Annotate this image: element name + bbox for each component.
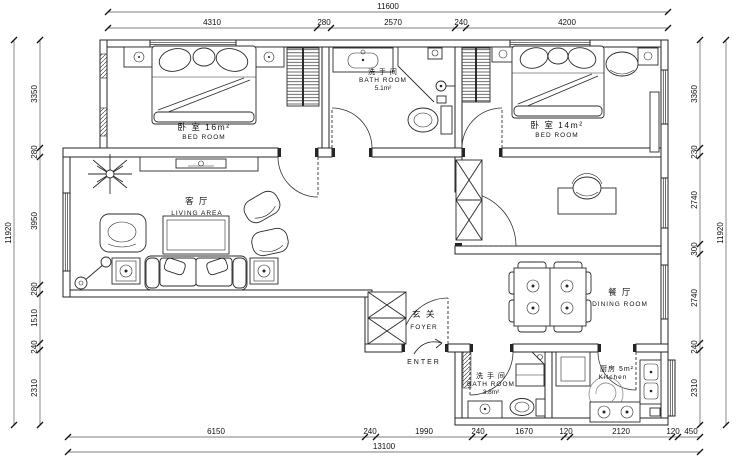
dim-bottom-3: 1990 <box>415 427 433 436</box>
room-label-dining-cn: 餐 厅 <box>608 287 632 297</box>
cabinet-x-icon <box>456 160 482 240</box>
cabinet-icon <box>516 364 544 386</box>
stove-icon <box>590 402 640 422</box>
dim-bottom-total: 13100 <box>373 442 396 451</box>
door-bedroom1 <box>278 157 318 197</box>
bathroom1-fixtures <box>333 47 455 134</box>
bed-icon <box>512 45 604 118</box>
armchair-icon <box>100 214 146 252</box>
dining-table-icon <box>509 262 591 332</box>
dim-bottom-7: 2120 <box>612 427 630 436</box>
floor-plan-drawing: 11600 4310 280 2570 240 4200 6150 240 19… <box>0 0 740 462</box>
room-label-foyer-en: FOYER <box>410 324 437 331</box>
study-furniture <box>456 160 616 240</box>
dim-right-6: 240 <box>690 340 699 354</box>
dimension-top: 11600 4310 280 2570 240 4200 <box>105 2 671 31</box>
room-label-bedroom1-en: BED ROOM <box>182 134 225 141</box>
desk-icon <box>558 174 616 214</box>
wardrobe-icon <box>287 48 319 106</box>
toilet-icon <box>510 399 545 417</box>
radiator-icon <box>100 108 107 136</box>
nightstand-icon <box>638 48 658 65</box>
accent-chair-icon <box>250 227 290 258</box>
window-bedroom2-right <box>661 70 668 124</box>
dim-right-2: 230 <box>690 145 699 159</box>
dim-left-6: 240 <box>30 340 39 354</box>
bedroom1-furniture <box>124 45 319 124</box>
dim-bottom-1: 6150 <box>207 427 225 436</box>
dim-left-1: 3350 <box>30 85 39 103</box>
dim-left-4: 280 <box>30 282 39 296</box>
kitchen-fixtures <box>556 352 661 422</box>
nightstand-icon <box>492 47 514 62</box>
chair-icon <box>606 52 638 76</box>
tv-cabinet-icon <box>140 157 258 171</box>
dim-bottom-2: 240 <box>363 427 377 436</box>
door-entry <box>402 298 448 344</box>
sofa-icon <box>145 256 247 290</box>
room-label-kitchen-cn: 厨房 5m² <box>600 364 634 373</box>
dim-bottom-6: 120 <box>559 427 573 436</box>
dim-bottom-8: 120 <box>666 427 680 436</box>
door-bathroom1 <box>332 108 372 148</box>
room-label-dining-en: DINING ROOM <box>592 301 648 308</box>
toilet-icon <box>408 106 452 134</box>
window-living-left <box>63 193 70 271</box>
floor-plan: 11600 4310 280 2570 240 4200 6150 240 19… <box>0 0 740 462</box>
window-kitchen-bay <box>668 360 675 416</box>
speaker-icon <box>112 258 140 284</box>
room-label-bathroom1-area: 5.1m² <box>375 85 392 92</box>
dim-left-5: 1510 <box>30 309 39 327</box>
dim-top-1: 4310 <box>203 18 221 27</box>
dim-right-total: 11920 <box>716 222 725 244</box>
dim-top-3: 2570 <box>384 18 402 27</box>
corner-shelf-icon <box>532 352 545 365</box>
dim-top-5: 4200 <box>558 18 576 27</box>
room-label-bathroom1-en: BATH ROOM <box>359 77 407 84</box>
dim-top-2: 280 <box>317 18 331 27</box>
dim-right-4: 300 <box>690 242 699 256</box>
room-label-bathroom1-cn: 洗 手 间 <box>368 67 398 76</box>
living-furniture <box>75 154 290 290</box>
dimension-bottom: 6150 240 1990 240 1670 120 2120 120 450 … <box>65 427 703 455</box>
dim-top-4: 240 <box>454 18 468 27</box>
door-bedroom2 <box>462 108 502 148</box>
dim-bottom-9: 450 <box>684 427 698 436</box>
entry-label: ENTER <box>407 359 441 366</box>
nightstand-icon <box>254 47 284 67</box>
room-label-bathroom2-en: BATH ROOM <box>467 381 515 388</box>
dimension-left: 11920 3350 280 3950 280 1510 240 2310 <box>4 37 43 428</box>
dim-top-total: 11600 <box>377 2 399 11</box>
floor-lamp-icon <box>75 257 111 289</box>
cabinet-x-icon <box>368 292 406 344</box>
window-dining-right <box>661 265 668 319</box>
bed-icon <box>152 45 256 124</box>
dim-right-1: 3360 <box>690 85 699 103</box>
room-label-bathroom2-area: 3.8m² <box>483 389 500 396</box>
fridge-icon <box>556 352 590 386</box>
room-label-foyer-cn: 玄 关 <box>412 309 436 319</box>
shower-icon <box>398 47 455 103</box>
room-label-bedroom2-en: BED ROOM <box>535 132 578 139</box>
kitchen-sink-icon <box>640 360 661 404</box>
dining-furniture <box>509 262 591 332</box>
wardrobe-icon <box>462 48 490 102</box>
dim-left-total: 11920 <box>4 222 13 244</box>
room-label-bedroom2-cn: 卧 室 14m² <box>530 120 583 130</box>
dim-left-2: 280 <box>30 145 39 159</box>
dim-bottom-5: 1670 <box>515 427 533 436</box>
dimension-right: 3360 230 2740 300 2740 240 2310 11920 <box>690 37 729 428</box>
room-label-bedroom1-cn: 卧 室 16m² <box>177 122 230 132</box>
dim-left-3: 3950 <box>30 212 39 230</box>
speaker-icon <box>250 258 278 284</box>
dim-right-7: 2310 <box>690 379 699 397</box>
accent-chair-icon <box>240 188 283 227</box>
coffee-table-icon <box>163 216 229 254</box>
room-label-living-en: LIVING AREA <box>171 210 222 217</box>
dim-right-3: 2740 <box>690 191 699 209</box>
window-study-right <box>661 178 668 228</box>
nightstand-icon <box>124 47 154 67</box>
dim-right-5: 2740 <box>690 289 699 307</box>
room-label-kitchen-en: Kitchen <box>599 374 628 381</box>
outlet-icon <box>650 408 660 416</box>
room-label-living-cn: 客 厅 <box>185 196 209 206</box>
enter-arrow-icon <box>414 339 442 354</box>
dim-left-7: 2310 <box>30 379 39 397</box>
sink-icon <box>468 401 502 418</box>
radiator-icon <box>100 54 107 78</box>
room-label-bathroom2-cn: 洗 手 间 <box>476 371 506 380</box>
console-icon <box>650 92 659 152</box>
plant-icon <box>88 154 132 194</box>
dim-bottom-4: 240 <box>471 427 485 436</box>
